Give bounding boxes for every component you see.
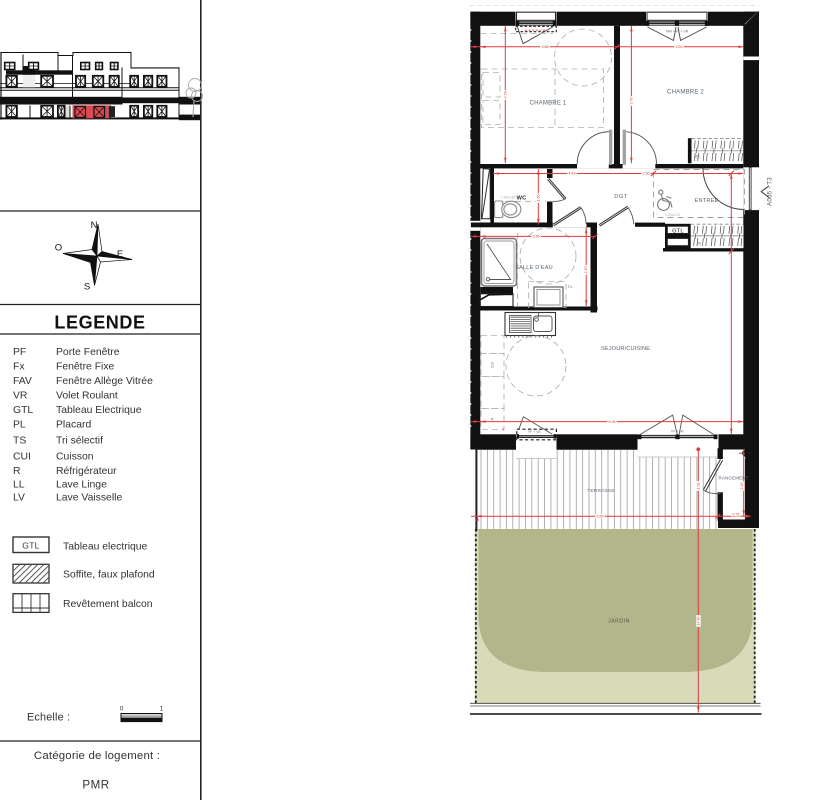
svg-text:R: R	[13, 466, 21, 477]
svg-text:14.90: 14.90	[697, 617, 701, 626]
svg-text:SALLE D'EAU: SALLE D'EAU	[515, 265, 553, 271]
svg-text:GTL: GTL	[672, 228, 683, 234]
svg-text:A005 - T3: A005 - T3	[766, 177, 773, 206]
svg-text:(h): (h)	[697, 242, 701, 246]
svg-text:Tableau electrique: Tableau electrique	[63, 542, 148, 553]
svg-text:Lave Vaisselle: Lave Vaisselle	[56, 493, 122, 504]
svg-text:Fx: Fx	[13, 362, 25, 373]
svg-text:PF + VR: PF + VR	[528, 430, 541, 434]
svg-text:4.43: 4.43	[569, 171, 576, 175]
svg-text:LEGENDE: LEGENDE	[54, 313, 145, 333]
svg-text:0.75: 0.75	[733, 512, 740, 516]
svg-text:1.20x2.20: 1.20x2.20	[665, 213, 680, 217]
svg-text:0: 0	[120, 706, 124, 713]
svg-text:1.50: 1.50	[643, 171, 650, 175]
svg-text:Placard: Placard	[56, 420, 91, 431]
svg-text:FAV + Fx + VR: FAV + Fx + VR	[666, 30, 689, 34]
svg-text:Revêtement balcon: Revêtement balcon	[63, 599, 153, 610]
svg-text:VR: VR	[13, 391, 28, 402]
svg-text:GTL: GTL	[22, 541, 39, 551]
svg-text:JARDIN: JARDIN	[608, 619, 630, 625]
svg-text:PMR: PMR	[82, 779, 109, 792]
svg-text:2.15: 2.15	[740, 483, 744, 490]
svg-text:S: S	[84, 282, 90, 293]
svg-text:3.86: 3.86	[542, 45, 549, 49]
svg-text:1: 1	[160, 706, 164, 713]
svg-text:Réfrigérateur: Réfrigérateur	[56, 466, 117, 477]
svg-text:Fenêtre Fixe: Fenêtre Fixe	[56, 362, 115, 373]
svg-text:CUI: CUI	[13, 452, 31, 463]
svg-text:3.78: 3.78	[504, 92, 508, 99]
svg-text:2: 2	[502, 427, 504, 431]
svg-text:Fenêtre Allège Vitrée: Fenêtre Allège Vitrée	[56, 376, 153, 387]
svg-text:PL: PL	[13, 420, 26, 431]
svg-text:CUI: CUI	[491, 362, 495, 369]
svg-text:E: E	[117, 249, 123, 260]
svg-text:Cuisson: Cuisson	[56, 452, 94, 463]
svg-text:ENTREE: ENTREE	[695, 198, 719, 204]
svg-text:LL: LL	[568, 284, 573, 289]
svg-text:O: O	[55, 243, 62, 254]
svg-text:PF + VR: PF + VR	[671, 430, 684, 434]
svg-text:Echelle :: Echelle :	[27, 712, 70, 724]
svg-text:Tableau Electrique: Tableau Electrique	[56, 405, 142, 416]
svg-text:CHAMBRE 1: CHAMBRE 1	[530, 99, 567, 106]
svg-text:N: N	[91, 220, 98, 231]
svg-text:CHAMBRE 2: CHAMBRE 2	[667, 88, 704, 95]
svg-text:LL: LL	[13, 480, 25, 491]
svg-text:TERRASSE: TERRASSE	[587, 488, 614, 494]
svg-text:FAV: FAV	[13, 376, 32, 387]
svg-text:Porte Fenêtre: Porte Fenêtre	[56, 347, 120, 358]
svg-text:1.30x0.85: 1.30x0.85	[501, 196, 515, 200]
svg-text:2.46: 2.46	[533, 235, 540, 239]
svg-text:3.50: 3.50	[676, 45, 683, 49]
svg-text:Lave Linge: Lave Linge	[56, 480, 107, 491]
svg-text:2.15: 2.15	[584, 267, 588, 274]
svg-text:Volet Roulant: Volet Roulant	[56, 391, 118, 402]
svg-text:3.78: 3.78	[630, 98, 634, 105]
svg-text:PF: PF	[13, 347, 26, 358]
svg-text:R: R	[491, 417, 495, 420]
svg-text:1.91: 1.91	[696, 483, 700, 490]
svg-text:GTL: GTL	[13, 405, 33, 416]
svg-text:DGT: DGT	[614, 194, 627, 200]
svg-text:Tri sélectif: Tri sélectif	[56, 436, 103, 447]
svg-text:Soffite, faux plafond: Soffite, faux plafond	[63, 570, 155, 581]
svg-text:5.59: 5.59	[597, 514, 604, 518]
svg-text:(h): (h)	[695, 155, 699, 159]
svg-text:Catégorie de logement :: Catégorie de logement :	[34, 750, 160, 762]
svg-text:LV: LV	[13, 493, 25, 504]
svg-text:WC: WC	[516, 196, 527, 202]
svg-text:TS: TS	[13, 436, 26, 447]
svg-text:6.08: 6.08	[609, 420, 616, 424]
svg-text:1.50: 1.50	[537, 195, 541, 202]
svg-text:SEJOUR/CUISINE: SEJOUR/CUISINE	[601, 346, 650, 352]
